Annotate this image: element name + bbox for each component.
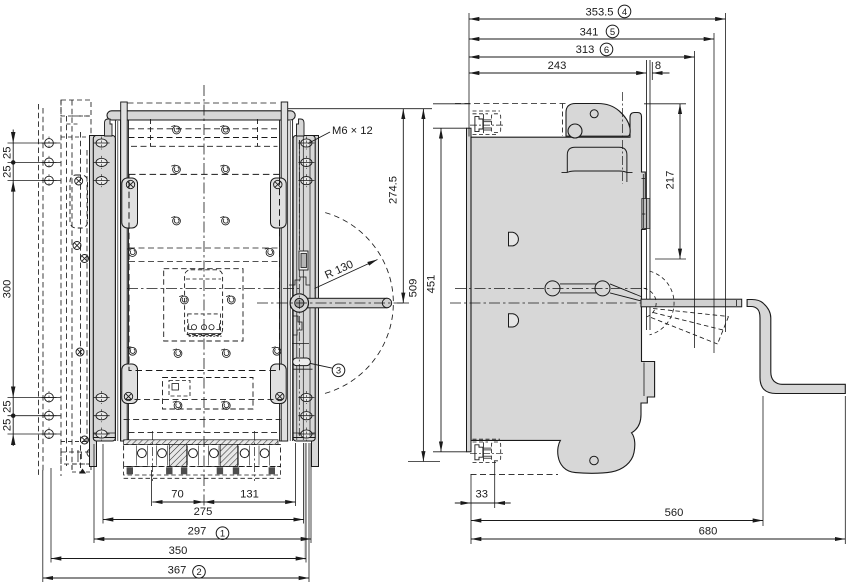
svg-text:25: 25 [1,400,13,412]
svg-text:297: 297 [188,526,207,538]
svg-text:367: 367 [168,565,187,577]
svg-text:4: 4 [622,7,627,18]
svg-text:451: 451 [425,275,437,294]
svg-text:25: 25 [1,147,13,159]
svg-text:680: 680 [699,526,718,538]
svg-text:353.5: 353.5 [586,6,614,18]
svg-text:5: 5 [610,27,615,38]
svg-text:1: 1 [220,529,225,540]
svg-text:M6 × 12: M6 × 12 [332,125,373,137]
svg-text:313: 313 [576,44,595,56]
svg-text:509: 509 [407,279,419,298]
svg-text:274.5: 274.5 [387,176,399,204]
svg-text:25: 25 [1,419,13,431]
svg-text:275: 275 [194,506,213,518]
svg-text:25: 25 [1,165,13,177]
svg-text:217: 217 [664,171,676,190]
svg-text:131: 131 [240,489,259,501]
svg-text:560: 560 [665,507,684,519]
svg-text:243: 243 [548,60,567,72]
svg-text:6: 6 [604,45,609,56]
svg-text:300: 300 [1,280,13,299]
svg-text:2: 2 [196,567,201,578]
svg-text:70: 70 [171,489,183,501]
svg-text:350: 350 [169,545,188,557]
svg-text:33: 33 [475,489,487,501]
svg-text:8: 8 [655,60,661,72]
svg-text:3: 3 [336,366,341,377]
svg-text:341: 341 [580,26,599,38]
